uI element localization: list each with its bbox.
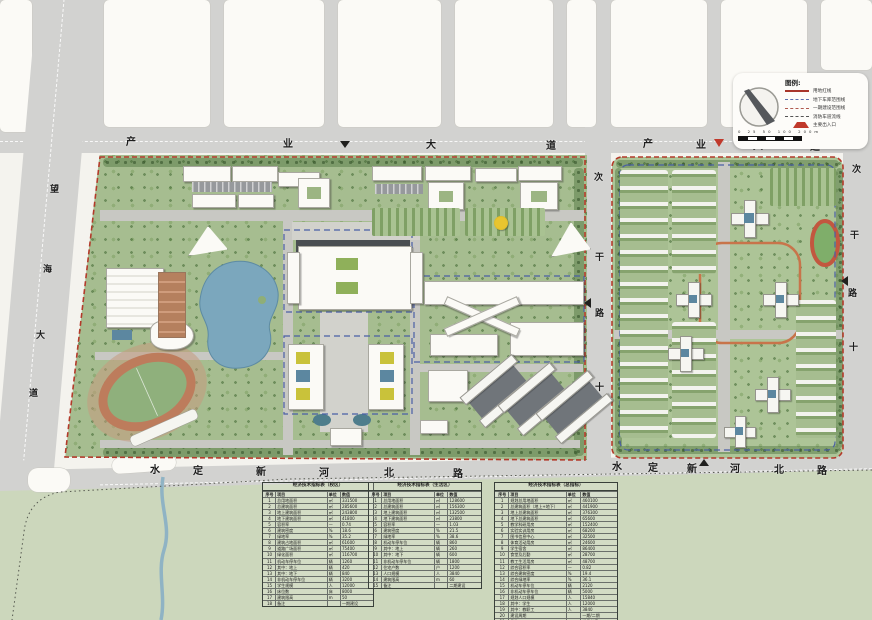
building bbox=[372, 166, 422, 181]
table-row: 6建筑密度%21.5 bbox=[369, 527, 481, 533]
road-label-char: 业 bbox=[696, 136, 706, 151]
lake bbox=[200, 261, 278, 368]
table-row: 9学生宿舍㎡86400 bbox=[495, 545, 617, 551]
table-row: 13其中：地下辆840 bbox=[263, 570, 373, 576]
pond bbox=[313, 414, 331, 426]
table-row: 16非机动车停车位辆5000 bbox=[495, 588, 617, 594]
scale-bar bbox=[738, 136, 802, 141]
road-label-char: 望 bbox=[50, 182, 59, 195]
south-gate bbox=[330, 428, 362, 446]
compass-icon bbox=[737, 85, 781, 129]
parking-lot bbox=[375, 184, 423, 194]
road-label-char: 海 bbox=[43, 262, 52, 275]
road-label-char: 定 bbox=[193, 462, 203, 477]
table-row: 3地上建筑面积㎡132500 bbox=[369, 509, 481, 515]
legend-item: 地下车库范围线 bbox=[785, 96, 863, 105]
lab-slab bbox=[510, 322, 584, 356]
garden-hedges bbox=[372, 208, 460, 236]
indicator-table-living: 经济技术指标表（生活区）序号项目单位数值1总用地面积㎡1286002总建筑面积㎡… bbox=[368, 482, 482, 589]
inner-court bbox=[380, 352, 394, 364]
dark-dash-sample bbox=[785, 116, 809, 117]
table-title: 经济技术指标表（生活区） bbox=[369, 483, 481, 491]
table-row: 11非机动车停车位辆1800 bbox=[369, 558, 481, 564]
road-label-char: 十 bbox=[849, 340, 858, 353]
road-label-char: 水 bbox=[150, 461, 160, 476]
cross-tower bbox=[755, 377, 789, 411]
table-row: 18备注一期建设 bbox=[263, 600, 373, 606]
inner-court bbox=[296, 370, 310, 382]
roof-court bbox=[336, 282, 358, 294]
table-title: 经济技术指标表（总指标） bbox=[495, 483, 617, 491]
table-row: 12其中：地上辆420 bbox=[263, 564, 373, 570]
entrance-triangle-sample bbox=[793, 122, 809, 128]
road-label-char: 河 bbox=[730, 460, 740, 475]
cross-tower bbox=[763, 282, 797, 316]
stream bbox=[161, 477, 167, 620]
table-row: 5教学科研用房㎡152400 bbox=[495, 521, 617, 527]
table-row: 19其中：教职工人3840 bbox=[495, 606, 617, 612]
road-label-char: 次 bbox=[594, 170, 603, 183]
road-label-char: 北 bbox=[774, 461, 784, 476]
table-row: 10食堂及后勤㎡28700 bbox=[495, 551, 617, 557]
cross-tower bbox=[676, 282, 710, 316]
road-label-char: 业 bbox=[283, 135, 293, 150]
table-row: 2总建筑面积㎡156300 bbox=[369, 503, 481, 509]
road-label-char: 道 bbox=[29, 386, 38, 399]
table-row: 3地上总建筑面积㎡376300 bbox=[495, 509, 617, 515]
building bbox=[183, 166, 231, 182]
entrance-marker bbox=[340, 141, 350, 148]
blue-dash-sample bbox=[785, 99, 809, 100]
building bbox=[475, 168, 517, 182]
road-label-char: 路 bbox=[817, 462, 827, 477]
table-header-row: 序号项目单位数值 bbox=[369, 491, 481, 497]
table-row: 1规划总用地面积㎡460100 bbox=[495, 497, 617, 503]
master-plan-map: 产 业 大 道 产 业 大 道 望 海 大 道 水 定 新 河 北 路 水 定 … bbox=[0, 0, 872, 620]
entrance-marker bbox=[699, 459, 709, 466]
cross-tower bbox=[668, 336, 702, 370]
road-label-char: 产 bbox=[643, 135, 653, 150]
table-row: 15机动车停车位辆2120 bbox=[495, 582, 617, 588]
table-row: 2总建筑面积㎡285600 bbox=[263, 503, 373, 509]
table-row: 12综合容积率—0.82 bbox=[495, 564, 617, 570]
courtyard-building bbox=[428, 182, 464, 210]
entrance-marker bbox=[584, 298, 591, 308]
table-row: 20建设周期一期/二期 bbox=[495, 612, 617, 618]
row-housing bbox=[672, 170, 716, 274]
row-housing bbox=[796, 300, 836, 438]
courtyard-building bbox=[298, 178, 330, 208]
table-row: 6实验实训用房㎡68200 bbox=[495, 527, 617, 533]
table-row: 14非机动车停车位辆3200 bbox=[263, 576, 373, 582]
table-row: 13人口规模人3840 bbox=[369, 570, 481, 576]
parking-lot bbox=[192, 182, 272, 192]
legend-item: 消防车道流线 bbox=[785, 113, 863, 122]
legend-item: 一期建设范围线 bbox=[785, 104, 863, 113]
building-wing bbox=[410, 252, 423, 304]
table-row: 8体育活动用房㎡24600 bbox=[495, 539, 617, 545]
road-label-char: 水 bbox=[612, 458, 622, 473]
table-row: 7绿地率%35.2 bbox=[263, 533, 373, 539]
cross-tower bbox=[731, 200, 767, 236]
table-row: 11教工生活用房㎡48700 bbox=[495, 558, 617, 564]
road-label-char: 路 bbox=[848, 286, 857, 299]
building bbox=[238, 194, 274, 208]
courtyard-building bbox=[520, 182, 558, 210]
table-row: 7图书信息中心㎡32500 bbox=[495, 533, 617, 539]
table-row: 10绿化面积㎡116700 bbox=[263, 551, 373, 557]
legend-item: 用地红线 bbox=[785, 87, 863, 96]
inner-court bbox=[380, 388, 394, 400]
road-label-char: 定 bbox=[648, 459, 658, 474]
table-row: 10其中：地下辆600 bbox=[369, 551, 481, 557]
table-row: 6建筑密度%18.6 bbox=[263, 527, 373, 533]
lake-island bbox=[258, 296, 266, 304]
inner-court bbox=[380, 370, 394, 382]
table-header-row: 序号项目单位数值 bbox=[495, 491, 617, 497]
legend: 图例: 用地红线 地下车库范围线 一期建设范围线 消防车道流线 主要出入口 0 … bbox=[733, 73, 868, 149]
building bbox=[420, 420, 448, 434]
building bbox=[192, 194, 236, 208]
table-row: 16床位数床8000 bbox=[263, 588, 373, 594]
table-row: 4地下建筑面积㎡23800 bbox=[369, 515, 481, 521]
indicator-table-campus: 经济技术指标表（校区）序号项目单位数值1总用地面积㎡3315002总建筑面积㎡2… bbox=[262, 482, 374, 607]
road-label-char: 大 bbox=[36, 328, 45, 341]
table-row: 15学生规模人12000 bbox=[263, 582, 373, 588]
yellow-pavilion bbox=[494, 216, 508, 230]
main-building bbox=[298, 246, 412, 310]
table-row: 1总用地面积㎡331500 bbox=[263, 497, 373, 503]
red-line-sample bbox=[785, 90, 809, 92]
table-row: 17建筑限高m50 bbox=[263, 594, 373, 600]
table-row: 3地上建筑面积㎡243800 bbox=[263, 509, 373, 515]
table-row: 7绿地率%38.6 bbox=[369, 533, 481, 539]
table-row: 12住宅户数户1200 bbox=[369, 564, 481, 570]
road-label-char: 产 bbox=[126, 133, 136, 148]
entrance-marker bbox=[714, 139, 724, 147]
table-row: 17规划人口规模人15840 bbox=[495, 594, 617, 600]
road-label-char: 路 bbox=[595, 306, 604, 319]
road-label-char: 次 bbox=[852, 162, 861, 175]
table-row: 8机动车停车位辆860 bbox=[369, 539, 481, 545]
table-row: 5容积率—0.74 bbox=[263, 521, 373, 527]
table-row: 4地下总建筑面积㎡65600 bbox=[495, 515, 617, 521]
inner-court bbox=[296, 388, 310, 400]
legend-title: 图例: bbox=[785, 77, 801, 87]
building-wing bbox=[287, 252, 300, 304]
road-label-char: 北 bbox=[384, 464, 394, 479]
lab-slab bbox=[430, 334, 498, 356]
road-label-char: 河 bbox=[319, 464, 329, 479]
table-row: 14建筑限高m60 bbox=[369, 576, 481, 582]
road-label-char: 大 bbox=[426, 136, 436, 151]
gymnasium bbox=[106, 268, 164, 328]
road-label-char: 路 bbox=[453, 465, 463, 480]
stadium bbox=[71, 324, 223, 460]
pool bbox=[112, 330, 132, 340]
garden-hedges bbox=[770, 168, 836, 206]
road-label-char: 干 bbox=[850, 228, 859, 241]
road-label-char: 新 bbox=[687, 460, 697, 475]
basketball-courts bbox=[158, 272, 186, 338]
pond bbox=[353, 414, 371, 426]
scale-numbers: 0 25 50 100 200m bbox=[738, 129, 821, 134]
road-label-char: 干 bbox=[595, 250, 604, 263]
indicator-table-total: 经济技术指标表（总指标）序号项目单位数值1规划总用地面积㎡4601002总建筑面… bbox=[494, 482, 618, 620]
red-dash-sample bbox=[785, 108, 809, 109]
inner-court bbox=[296, 352, 310, 364]
small-running-track bbox=[812, 221, 838, 265]
building bbox=[425, 166, 471, 181]
table-row: 4地下建筑面积㎡41800 bbox=[263, 515, 373, 521]
building bbox=[232, 166, 278, 182]
row-housing bbox=[620, 170, 668, 438]
entrance-marker bbox=[841, 276, 848, 286]
table-row: 15备注二期建设 bbox=[369, 582, 481, 588]
table-row: 14综合绿地率%36.1 bbox=[495, 576, 617, 582]
table-row: 8建筑占地面积㎡61600 bbox=[263, 539, 373, 545]
roof-court bbox=[336, 258, 358, 270]
table-row: 13综合建筑密度%19.4 bbox=[495, 570, 617, 576]
table-row: 2总建筑面积（地上+地下）㎡441900 bbox=[495, 503, 617, 509]
table-row: 9道路广场面积㎡75400 bbox=[263, 545, 373, 551]
table-header-row: 序号项目单位数值 bbox=[263, 491, 373, 497]
table-row: 1总用地面积㎡128600 bbox=[369, 497, 481, 503]
table-row: 5容积率—1.03 bbox=[369, 521, 481, 527]
table-row: 9其中：地上辆260 bbox=[369, 545, 481, 551]
cross-tower bbox=[724, 416, 754, 446]
table-title: 经济技术指标表（校区） bbox=[263, 483, 373, 491]
table-row: 18其中：学生人12000 bbox=[495, 600, 617, 606]
road-label-char: 十 bbox=[595, 380, 604, 393]
table-row: 11机动车停车位辆1260 bbox=[263, 558, 373, 564]
building bbox=[518, 166, 562, 181]
road-label-char: 道 bbox=[546, 137, 556, 152]
road-label-char: 新 bbox=[256, 463, 266, 478]
